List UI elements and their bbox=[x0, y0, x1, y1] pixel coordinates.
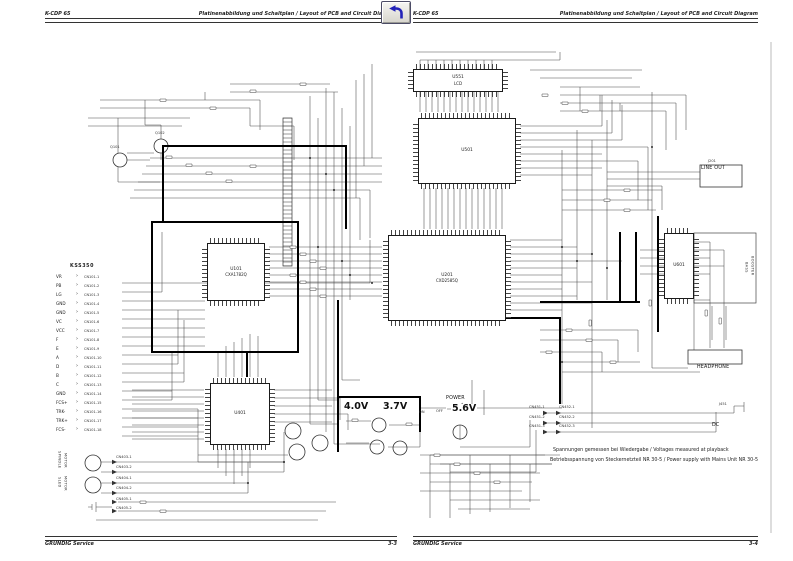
connector-arrow-icon: › bbox=[76, 319, 84, 324]
pickup-pin-connector: CN101-15 bbox=[84, 401, 101, 405]
schematic-label: CN452-3 bbox=[559, 425, 575, 429]
pickup-pin-name: GND bbox=[56, 391, 76, 396]
connector-arrow-icon: › bbox=[76, 391, 84, 396]
ic-pins-left bbox=[408, 72, 413, 89]
schematic-label: BASS bbox=[744, 262, 748, 273]
back-button[interactable] bbox=[381, 1, 411, 24]
schematic-label: CN452-1 bbox=[559, 406, 575, 410]
pickup-pin-row: FCS- › CN101-18 bbox=[56, 425, 101, 434]
pickup-pin-connector: CN101-10 bbox=[84, 356, 101, 360]
schematic-label: Q101 bbox=[110, 146, 120, 150]
ic-pins-left bbox=[205, 386, 210, 442]
pickup-pin-connector: CN101-5 bbox=[84, 311, 99, 315]
pickup-pin-name: GND bbox=[56, 301, 76, 306]
schematic-label: Q102 bbox=[155, 132, 165, 136]
pickup-pin-connector: CN101-4 bbox=[84, 302, 99, 306]
schematic-label: CN403-1 bbox=[116, 456, 132, 460]
schematic-label: MOTOR bbox=[63, 476, 67, 491]
pickup-pin-name: A bbox=[56, 355, 76, 360]
ic-part-number: LCD bbox=[454, 81, 462, 86]
connector-arrow-icon: › bbox=[76, 373, 84, 378]
ic-pins-left bbox=[202, 246, 207, 298]
ic-pins-left bbox=[383, 238, 388, 318]
connector-arrow-icon: › bbox=[76, 310, 84, 315]
pickup-pin-list: VR › CN101-1 PB › CN101-2 LG › CN101-3 G… bbox=[56, 272, 101, 434]
ic-reference: U401 bbox=[234, 411, 246, 417]
ic-chip: U601 bbox=[664, 233, 694, 299]
pickup-pin-name: PB bbox=[56, 283, 76, 288]
pickup-pin-name: FCS+ bbox=[56, 400, 76, 405]
pickup-pin-row: GND › CN101-14 bbox=[56, 389, 101, 398]
schematic-label: CN405-1 bbox=[116, 498, 132, 502]
connector-arrow-icon: › bbox=[76, 328, 84, 333]
pickup-pin-connector: CN101-17 bbox=[84, 419, 101, 423]
schematic-label: MOTOR bbox=[63, 453, 67, 468]
pickup-pin-connector: CN101-12 bbox=[84, 374, 101, 378]
ic-reference: U601 bbox=[673, 263, 685, 269]
ic-pins-right bbox=[265, 246, 270, 298]
pickup-pin-name: TRK- bbox=[56, 409, 76, 414]
pickup-pin-row: TRK+ › CN101-17 bbox=[56, 416, 101, 425]
connector-arrow-icon: › bbox=[76, 382, 84, 387]
connector-arrow-icon: › bbox=[76, 400, 84, 405]
schematic-label: CN451-3 bbox=[529, 425, 545, 429]
pickup-pin-name: VC bbox=[56, 319, 76, 324]
connector-arrow-icon: › bbox=[76, 364, 84, 369]
connector-arrow-icon: › bbox=[76, 274, 84, 279]
schematic-label: CN451-1 bbox=[529, 406, 545, 410]
schematic-label: SLED bbox=[57, 477, 61, 488]
ic-pins-right bbox=[503, 72, 508, 89]
pickup-pin-name: F bbox=[56, 337, 76, 342]
note-power-supply: Betriebsspannung von Steckernetzteil NR … bbox=[550, 458, 758, 463]
schematic-label: LINE OUT bbox=[701, 167, 725, 172]
schematic-label: ON bbox=[419, 411, 425, 415]
pickup-pin-connector: CN101-13 bbox=[84, 383, 101, 387]
ic-chip: U201 CXD2585Q bbox=[388, 235, 506, 321]
ic-reference: U501 bbox=[461, 148, 473, 154]
ic-pins-left bbox=[659, 236, 664, 296]
ic-chip: U401 bbox=[210, 383, 270, 445]
pickup-pin-row: D › CN101-11 bbox=[56, 362, 101, 371]
pickup-pin-connector: CN101-9 bbox=[84, 347, 99, 351]
schematic-label: CN405-2 bbox=[116, 507, 132, 511]
pickup-pin-name: VR bbox=[56, 274, 76, 279]
pickup-pin-row: GND › CN101-5 bbox=[56, 308, 101, 317]
schematic-label: 3.7V bbox=[382, 402, 408, 412]
schematic-label: CN404-1 bbox=[116, 477, 132, 481]
pickup-pin-row: GND › CN101-4 bbox=[56, 299, 101, 308]
pickup-pin-connector: CN101-1 bbox=[84, 275, 99, 279]
connector-arrow-icon: › bbox=[76, 355, 84, 360]
schematic-label: BOOSTER bbox=[750, 256, 754, 275]
pickup-pin-name: VCC bbox=[56, 328, 76, 333]
pickup-connector-block: KSS350 VR › CN101-1 PB › CN101-2 LG › CN… bbox=[56, 264, 101, 434]
ic-pins-right bbox=[270, 386, 275, 442]
pickup-pin-name: GND bbox=[56, 310, 76, 315]
ic-pins-right bbox=[506, 238, 511, 318]
pickup-pin-row: VR › CN101-1 bbox=[56, 272, 101, 281]
pickup-pin-row: TRK- › CN101-16 bbox=[56, 407, 101, 416]
ic-chip: U101 CXA1782Q bbox=[207, 243, 265, 301]
connector-arrow-icon: › bbox=[76, 427, 84, 432]
pickup-pin-row: A › CN101-10 bbox=[56, 353, 101, 362]
pickup-pin-row: VCC › CN101-7 bbox=[56, 326, 101, 335]
pickup-pin-row: E › CN101-9 bbox=[56, 344, 101, 353]
pickup-pin-connector: CN101-7 bbox=[84, 329, 99, 333]
pickup-pin-name: C bbox=[56, 382, 76, 387]
pickup-pin-row: LG › CN101-3 bbox=[56, 290, 101, 299]
schematic-label: CN403-2 bbox=[116, 466, 132, 470]
pickup-pin-name: B bbox=[56, 373, 76, 378]
pickup-pin-connector: CN101-11 bbox=[84, 365, 101, 369]
pickup-pin-connector: CN101-3 bbox=[84, 293, 99, 297]
connector-arrow-icon: › bbox=[76, 346, 84, 351]
pickup-pin-connector: CN101-8 bbox=[84, 338, 99, 342]
schematic-label: DC bbox=[712, 424, 719, 429]
pickup-pin-row: PB › CN101-2 bbox=[56, 281, 101, 290]
connector-arrow-icon: › bbox=[76, 292, 84, 297]
schematic-label: CN404-2 bbox=[116, 487, 132, 491]
circuit-schematic: KSS350 VR › CN101-1 PB › CN101-2 LG › CN… bbox=[0, 0, 793, 561]
manual-page-spread: K-CDP 65 Platinenabbildung und Schaltpla… bbox=[0, 0, 793, 561]
ic-pins-left bbox=[413, 121, 418, 181]
schematic-label: J451 bbox=[719, 403, 727, 407]
pickup-pin-connector: CN101-16 bbox=[84, 410, 101, 414]
schematic-label: OFF bbox=[436, 410, 443, 414]
note-voltages: Spannungen gemessen bei Wiedergabe / Vol… bbox=[553, 448, 729, 453]
ic-pins-right bbox=[516, 121, 521, 181]
schematic-label: 5.6V bbox=[451, 404, 477, 414]
pickup-pin-name: FCS- bbox=[56, 427, 76, 432]
connector-arrow-icon: › bbox=[76, 301, 84, 306]
schematic-label: J201 bbox=[708, 160, 716, 164]
pickup-name: KSS350 bbox=[70, 264, 101, 269]
pickup-pin-connector: CN101-6 bbox=[84, 320, 99, 324]
pickup-pin-row: FCS+ › CN101-15 bbox=[56, 398, 101, 407]
pickup-pin-name: TRK+ bbox=[56, 418, 76, 423]
connector-arrow-icon: › bbox=[76, 409, 84, 414]
pickup-pin-connector: CN101-18 bbox=[84, 428, 101, 432]
ic-pins-right bbox=[694, 236, 699, 296]
schematic-label: SPINDLE bbox=[57, 451, 61, 468]
pickup-pin-row: B › CN101-12 bbox=[56, 371, 101, 380]
schematic-label: CN452-2 bbox=[559, 416, 575, 420]
ic-chip: U551 LCD bbox=[413, 69, 503, 92]
ic-chip: U501 bbox=[418, 118, 516, 184]
connector-arrow-icon: › bbox=[76, 337, 84, 342]
pickup-pin-name: LG bbox=[56, 292, 76, 297]
schematic-label: 4.0V bbox=[343, 402, 369, 412]
ic-part-number: CXD2585Q bbox=[436, 278, 458, 283]
schematic-label: CN451-2 bbox=[529, 416, 545, 420]
schematic-label: POWER bbox=[446, 397, 465, 402]
pickup-pin-name: E bbox=[56, 346, 76, 351]
back-icon bbox=[387, 5, 405, 20]
connector-arrow-icon: › bbox=[76, 418, 84, 423]
pickup-pin-name: D bbox=[56, 364, 76, 369]
connector-arrow-icon: › bbox=[76, 283, 84, 288]
pickup-pin-row: VC › CN101-6 bbox=[56, 317, 101, 326]
pickup-pin-connector: CN101-14 bbox=[84, 392, 101, 396]
pickup-pin-row: C › CN101-13 bbox=[56, 380, 101, 389]
schematic-label: HEADPHONE bbox=[697, 366, 729, 371]
pickup-pin-row: F › CN101-8 bbox=[56, 335, 101, 344]
pickup-pin-connector: CN101-2 bbox=[84, 284, 99, 288]
ic-part-number: CXA1782Q bbox=[225, 272, 247, 277]
